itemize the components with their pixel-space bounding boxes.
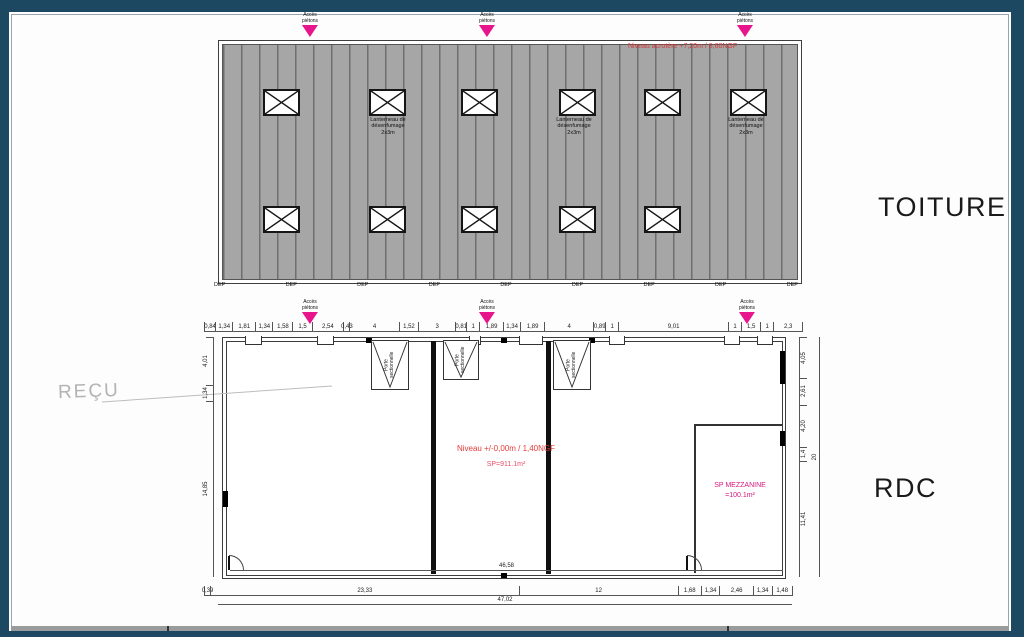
dim-segment: 23,33 bbox=[210, 586, 518, 595]
dim-label: 1,81 bbox=[238, 324, 250, 330]
dim-label: 1 bbox=[733, 324, 736, 330]
mezzanine-surface-note: SP MEZZANINE =100.1m² bbox=[714, 481, 766, 501]
dim-label: 14,85 bbox=[203, 481, 209, 496]
dim-segment: 1 bbox=[605, 322, 618, 331]
mezzanine-label: SP MEZZANINE bbox=[714, 482, 766, 489]
access-label: Accès piétons bbox=[479, 13, 495, 24]
pedestrian-access-marker: Accès piétons bbox=[739, 300, 755, 324]
dim-segment: 1,89 bbox=[520, 322, 544, 331]
access-arrow-icon bbox=[739, 312, 755, 324]
dim-label: 23,33 bbox=[357, 588, 372, 594]
dep-label: DEP bbox=[429, 282, 440, 288]
dep-label: DEP bbox=[357, 282, 368, 288]
dim-segment: 11,41 bbox=[800, 461, 811, 577]
dim-label: 4 bbox=[568, 324, 571, 330]
downpipe-label-row: DEPDEPDEPDEPDEPDEPDEPDEPDEP bbox=[214, 282, 798, 288]
dim-segment: 1,34 bbox=[753, 586, 772, 595]
dim-label: 1,34 bbox=[203, 387, 209, 399]
dim-label: 1,34 bbox=[757, 588, 769, 594]
dim-label: 0,84 bbox=[204, 324, 216, 330]
dim-label: 3 bbox=[436, 324, 439, 330]
titleblock-top-edge bbox=[11, 626, 1009, 631]
dim-segment: 4,05 bbox=[800, 337, 811, 378]
dim-segment: 4,01 bbox=[202, 337, 213, 385]
dim-segment: 12 bbox=[519, 586, 678, 595]
dim-label: 12 bbox=[595, 588, 602, 594]
access-arrow-icon bbox=[479, 25, 495, 37]
surface-note: SP=911.1m² bbox=[487, 461, 526, 468]
dim-label: 1,48 bbox=[776, 588, 788, 594]
access-arrow-icon bbox=[479, 312, 495, 324]
roof-ribbed-surface bbox=[222, 44, 798, 280]
roof-plan: Lanterneau de désenfumage 2x3m Lanternea… bbox=[218, 40, 802, 284]
dim-label: 4,05 bbox=[801, 352, 807, 364]
partition-wall bbox=[546, 341, 551, 574]
dim-segment: 1,34 bbox=[701, 586, 720, 595]
dim-label: 1 bbox=[766, 324, 769, 330]
stamp-scribble bbox=[92, 378, 342, 408]
dim-label: 1,58 bbox=[277, 324, 289, 330]
skylight-label: Lanterneau de désenfumage 2x3m bbox=[539, 117, 609, 136]
dim-label: 1,4 bbox=[801, 450, 807, 458]
dim-label: 1,89 bbox=[486, 324, 498, 330]
dim-label: 4,01 bbox=[203, 355, 209, 367]
dim-segment: 1 bbox=[466, 322, 479, 331]
column-mark bbox=[501, 573, 507, 578]
dim-label: 4,20 bbox=[801, 420, 807, 432]
dim-segment: 1,34 bbox=[202, 385, 213, 401]
door-label: Porte sectionnelle bbox=[444, 341, 478, 379]
dim-label: 1,34 bbox=[705, 588, 717, 594]
section-label-rdc: RDC bbox=[874, 473, 937, 504]
dim-right-total: 20 bbox=[819, 337, 820, 577]
dim-segment: 1,34 bbox=[503, 322, 520, 331]
dim-chain-right-inner: 4,052,614,201,411,41 bbox=[799, 337, 811, 577]
dim-label: 2,46 bbox=[731, 588, 743, 594]
access-label: Accès piétons bbox=[302, 300, 318, 311]
sectional-door-symbol: Porte sectionnelle bbox=[371, 340, 409, 390]
dim-label: 2,3 bbox=[784, 324, 792, 330]
door-label: Porte sectionnelle bbox=[372, 341, 408, 389]
dim-segment: 2,61 bbox=[800, 378, 811, 404]
dim-label: 47,02 bbox=[495, 597, 514, 603]
dim-label: 0,89 bbox=[594, 324, 606, 330]
dim-bottom-inner: 46,58 bbox=[230, 570, 783, 571]
dim-segment: 1,48 bbox=[772, 586, 793, 595]
column-mark bbox=[780, 351, 785, 384]
dim-segment: 1,68 bbox=[678, 586, 701, 595]
drawing-page: Lanterneau de désenfumage 2x3m Lanternea… bbox=[0, 0, 1024, 637]
dep-label: DEP bbox=[214, 282, 225, 288]
skylight-label: Lanterneau de désenfumage 2x3m bbox=[711, 117, 781, 136]
dep-label: DEP bbox=[715, 282, 726, 288]
section-label-toiture: TOITURE bbox=[878, 192, 1007, 223]
skylight-icon bbox=[263, 206, 300, 233]
dim-label: 1,34 bbox=[506, 324, 518, 330]
dim-label: 20 bbox=[812, 452, 818, 463]
window-opening bbox=[724, 336, 740, 345]
access-arrow-icon bbox=[302, 312, 318, 324]
window-opening bbox=[245, 336, 262, 345]
skylight-icon bbox=[644, 89, 681, 116]
column-mark bbox=[501, 338, 507, 343]
inner-wall-line bbox=[226, 341, 783, 576]
dim-segment: 0,89 bbox=[593, 322, 605, 331]
pedestrian-access-marker: Accès piétons bbox=[302, 13, 318, 37]
partition-wall bbox=[431, 341, 436, 574]
dim-segment: 1,34 bbox=[255, 322, 272, 331]
dep-label: DEP bbox=[787, 282, 798, 288]
window-opening bbox=[609, 336, 625, 345]
door-leaf bbox=[686, 556, 688, 570]
pedestrian-access-marker: Accès piétons bbox=[302, 300, 318, 324]
dep-label: DEP bbox=[572, 282, 583, 288]
dim-bottom-total: 47,02 bbox=[218, 604, 792, 605]
mezzanine-wall bbox=[694, 424, 696, 573]
dim-label: 1,5 bbox=[298, 324, 306, 330]
dim-label: 1 bbox=[471, 324, 474, 330]
floor-plan: Porte sectionnelle Porte sectionnelle Po… bbox=[222, 337, 786, 579]
door-leaf bbox=[228, 556, 230, 570]
dim-segment: 1 bbox=[760, 322, 773, 331]
level-note: Niveau +/-0,00m / 1,40NGF bbox=[457, 444, 555, 453]
dim-label: 1,89 bbox=[527, 324, 539, 330]
dim-chain-left: 4,011,3414,85 bbox=[202, 337, 214, 577]
dim-segment: 2,3 bbox=[773, 322, 802, 331]
dim-label: 9,01 bbox=[668, 324, 680, 330]
parapet-level-note: Niveau acrotère +7,20m / 8,60NGF bbox=[628, 43, 737, 50]
dim-segment: 0,84 bbox=[204, 322, 215, 331]
access-label: Accès piétons bbox=[479, 300, 495, 311]
pedestrian-access-marker: Accès piétons bbox=[479, 300, 495, 324]
dep-label: DEP bbox=[643, 282, 654, 288]
dim-segment: 14,85 bbox=[202, 401, 213, 577]
skylight-label: Lanterneau de désenfumage 2x3m bbox=[353, 117, 423, 136]
window-opening bbox=[519, 336, 543, 345]
dim-segment: 3 bbox=[418, 322, 455, 331]
dep-label: DEP bbox=[286, 282, 297, 288]
access-label: Accès piétons bbox=[739, 300, 755, 311]
skylight-icon bbox=[369, 89, 406, 116]
sectional-door-symbol: Porte sectionnelle bbox=[443, 340, 479, 380]
dep-label: DEP bbox=[500, 282, 511, 288]
dim-label: 1,68 bbox=[684, 588, 696, 594]
dim-label: 1,5 bbox=[747, 324, 755, 330]
pedestrian-access-marker: Accès piétons bbox=[479, 13, 495, 37]
dim-chain-top: 0,841,341,811,341,581,52,540,4341,5230,8… bbox=[204, 322, 803, 332]
dim-segment: 1,4 bbox=[800, 447, 811, 461]
access-arrow-icon bbox=[302, 25, 318, 37]
dim-label: 1 bbox=[610, 324, 613, 330]
skylight-icon bbox=[263, 89, 300, 116]
pedestrian-access-marker: Accès piétons bbox=[737, 13, 753, 37]
dim-segment: 1,34 bbox=[215, 322, 232, 331]
skylight-icon bbox=[559, 206, 596, 233]
access-label: Accès piétons bbox=[737, 13, 753, 24]
dim-label: 46,58 bbox=[497, 563, 516, 569]
column-mark bbox=[780, 431, 785, 446]
skylight-icon bbox=[461, 206, 498, 233]
dim-segment: 4,20 bbox=[800, 405, 811, 448]
dim-label: 2,61 bbox=[801, 385, 807, 397]
skylight-icon bbox=[730, 89, 767, 116]
window-opening bbox=[757, 336, 773, 345]
dim-segment: 4 bbox=[544, 322, 593, 331]
titleblock-tick bbox=[727, 626, 729, 631]
dim-segment: 1,52 bbox=[399, 322, 418, 331]
skylight-icon bbox=[559, 89, 596, 116]
dim-label: 2,54 bbox=[322, 324, 334, 330]
sectional-door-symbol: Porte sectionnelle bbox=[553, 340, 591, 390]
dim-label: 11,41 bbox=[801, 512, 807, 527]
window-opening bbox=[317, 336, 334, 345]
mezzanine-area: =100.1m² bbox=[725, 492, 755, 499]
access-arrow-icon bbox=[737, 25, 753, 37]
dim-label: 4 bbox=[373, 324, 376, 330]
dim-segment: 0,81 bbox=[455, 322, 466, 331]
dim-segment: 2,46 bbox=[719, 586, 752, 595]
dim-segment: 4 bbox=[349, 322, 398, 331]
dim-segment: 1,81 bbox=[232, 322, 255, 331]
dim-segment: 1,58 bbox=[272, 322, 292, 331]
dim-chain-bottom: 0,3923,33121,681,342,461,341,48 bbox=[204, 586, 793, 596]
dim-label: 1,52 bbox=[403, 324, 415, 330]
skylight-icon bbox=[369, 206, 406, 233]
skylight-icon bbox=[461, 89, 498, 116]
skylight-icon bbox=[644, 206, 681, 233]
door-label: Porte sectionnelle bbox=[554, 341, 590, 389]
column-mark bbox=[223, 491, 228, 507]
mezzanine-wall bbox=[694, 424, 782, 426]
access-label: Accès piétons bbox=[302, 13, 318, 24]
dim-label: 1,34 bbox=[258, 324, 270, 330]
dim-label: 1,34 bbox=[218, 324, 230, 330]
dim-segment: 9,01 bbox=[618, 322, 728, 331]
titleblock-tick bbox=[167, 626, 169, 631]
